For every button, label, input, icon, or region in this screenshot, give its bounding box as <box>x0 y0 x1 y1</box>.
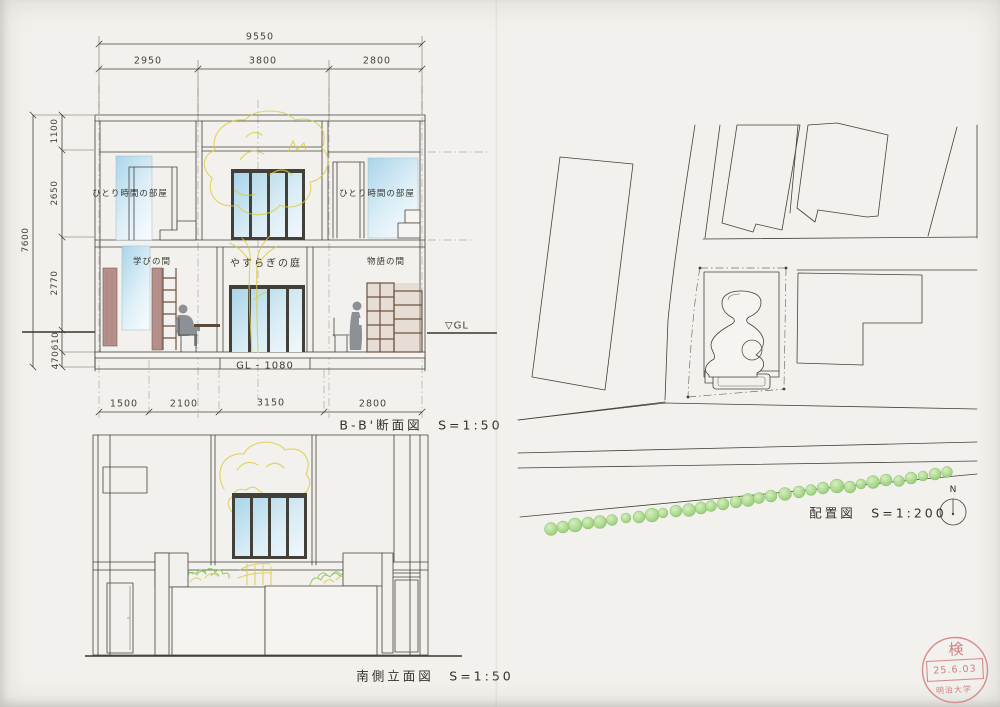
room-label-lower-right: 物語の間 <box>367 255 405 267</box>
shelf-step-upper <box>405 210 420 223</box>
gl-label: ▽GL <box>445 321 469 332</box>
dim-bottom-2: 2100 <box>170 399 198 410</box>
stamp-kanji: 検 <box>948 638 964 660</box>
dim-bottom-1: 1500 <box>110 399 138 410</box>
stamp-university: 明治大学 <box>936 684 973 697</box>
stamp-date: 25.6.03 <box>933 663 977 676</box>
stool <box>333 318 349 352</box>
dim-left-2: 2650 <box>50 181 60 206</box>
room-lower-right <box>333 283 422 352</box>
street-trees <box>545 467 953 536</box>
wood-panel-2 <box>152 268 162 350</box>
dim-bottom-3: 3150 <box>257 398 285 409</box>
compass-north-label: N <box>950 485 957 495</box>
courtyard-window-upper <box>231 169 305 240</box>
elevation-title: 南側立面図 S=1:50 <box>356 666 513 685</box>
site-building-outline <box>704 272 779 389</box>
front-wall-left <box>172 587 265 655</box>
wood-panel-1 <box>103 268 117 346</box>
dim-left-1: 1100 <box>50 119 60 144</box>
site-plan-drawing <box>518 123 977 536</box>
shelf-step-lower <box>398 223 420 238</box>
sheet-fold-seam <box>495 0 498 707</box>
pillar-strip-left <box>155 553 169 655</box>
side-door-right <box>395 580 418 652</box>
drawing-sheet: 9550 2950 3800 2800 7600 1100 2650 2770 … <box>0 0 1000 707</box>
room-label-upper-right: ひとり時間の部屋 <box>339 187 415 199</box>
desk <box>194 324 220 327</box>
ladder-shelf <box>163 268 176 350</box>
site-plan-title: 配置図 S=1:200 <box>809 503 946 522</box>
dim-top-1: 2950 <box>134 56 162 67</box>
dim-left-4: 610 <box>51 332 61 351</box>
standing-figure <box>350 302 364 351</box>
step-block <box>160 221 196 240</box>
elevation-drawing <box>85 435 462 656</box>
front-wall-right <box>265 586 377 655</box>
dim-left-3: 2770 <box>50 271 60 296</box>
dim-total-height: 7600 <box>21 228 31 253</box>
section-title: B-B'断面図 S=1:50 <box>339 415 502 434</box>
dim-top-2: 3800 <box>249 56 277 67</box>
dim-top-3: 2800 <box>363 56 391 67</box>
dim-left-5: 470 <box>51 351 61 370</box>
dim-bottom-4: 2800 <box>359 399 387 410</box>
elevation-window <box>232 493 307 559</box>
floor-level-label: GL - 1080 <box>236 361 294 372</box>
drawing-canvas <box>0 0 1000 707</box>
room-label-upper-left: ひとり時間の部屋 <box>92 187 168 199</box>
dim-total-width: 9550 <box>246 32 274 43</box>
pillar-right <box>343 553 383 586</box>
pillar-strip-right <box>382 553 393 653</box>
dimension-lines-top <box>96 36 425 120</box>
room-label-lower-left: 学びの間 <box>133 255 171 267</box>
garden-bushes <box>176 564 361 586</box>
organic-plan-shape <box>706 291 764 377</box>
courtyard-label: やすらぎの庭 <box>230 255 302 270</box>
courtyard-window-lower <box>229 285 305 352</box>
